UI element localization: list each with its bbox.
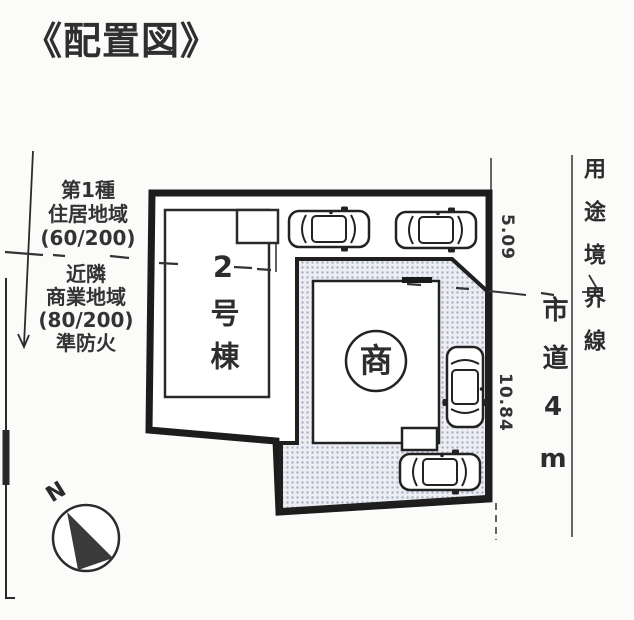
building-unit2-label: 2号棟: [201, 250, 245, 384]
car-icon: [400, 450, 480, 495]
left-edge-boundary-line: [3, 278, 16, 598]
zoning-residential-district: 住居地域: [32, 202, 144, 226]
zoning-label-residential: 第1種 住居地域 (60/200): [32, 178, 144, 250]
zoning-commercial-area: 近隣: [30, 263, 142, 286]
zoning-residential-type: 第1種: [32, 178, 144, 202]
car-icon: [396, 208, 476, 253]
zoning-commercial-ratio: (80/200): [30, 309, 142, 332]
dimension-5-09: 5.09: [497, 214, 517, 260]
zoning-label-commercial: 近隣 商業地域 (80/200) 準防火: [30, 263, 142, 355]
zoning-commercial-fire: 準防火: [30, 332, 142, 355]
road-label: 市道4m: [533, 296, 573, 496]
zoning-residential-ratio: (60/200): [32, 226, 144, 250]
use-district-boundary-label: 用途境界線: [576, 157, 608, 372]
north-compass-icon: [53, 505, 119, 571]
car-icon: [289, 207, 369, 252]
page-title: 《配置図》: [24, 10, 219, 65]
site-plan-canvas: 《配置図》 第1種 住居地域 (60/200) 近隣 商業地域 (80/200)…: [0, 0, 634, 620]
dimension-10-84: 10.84: [495, 373, 515, 432]
car-icon: [443, 347, 488, 427]
zoning-commercial-district: 商業地域: [30, 286, 142, 309]
commercial-building-mark: 商: [352, 337, 400, 385]
entrance-mark: [402, 277, 432, 283]
